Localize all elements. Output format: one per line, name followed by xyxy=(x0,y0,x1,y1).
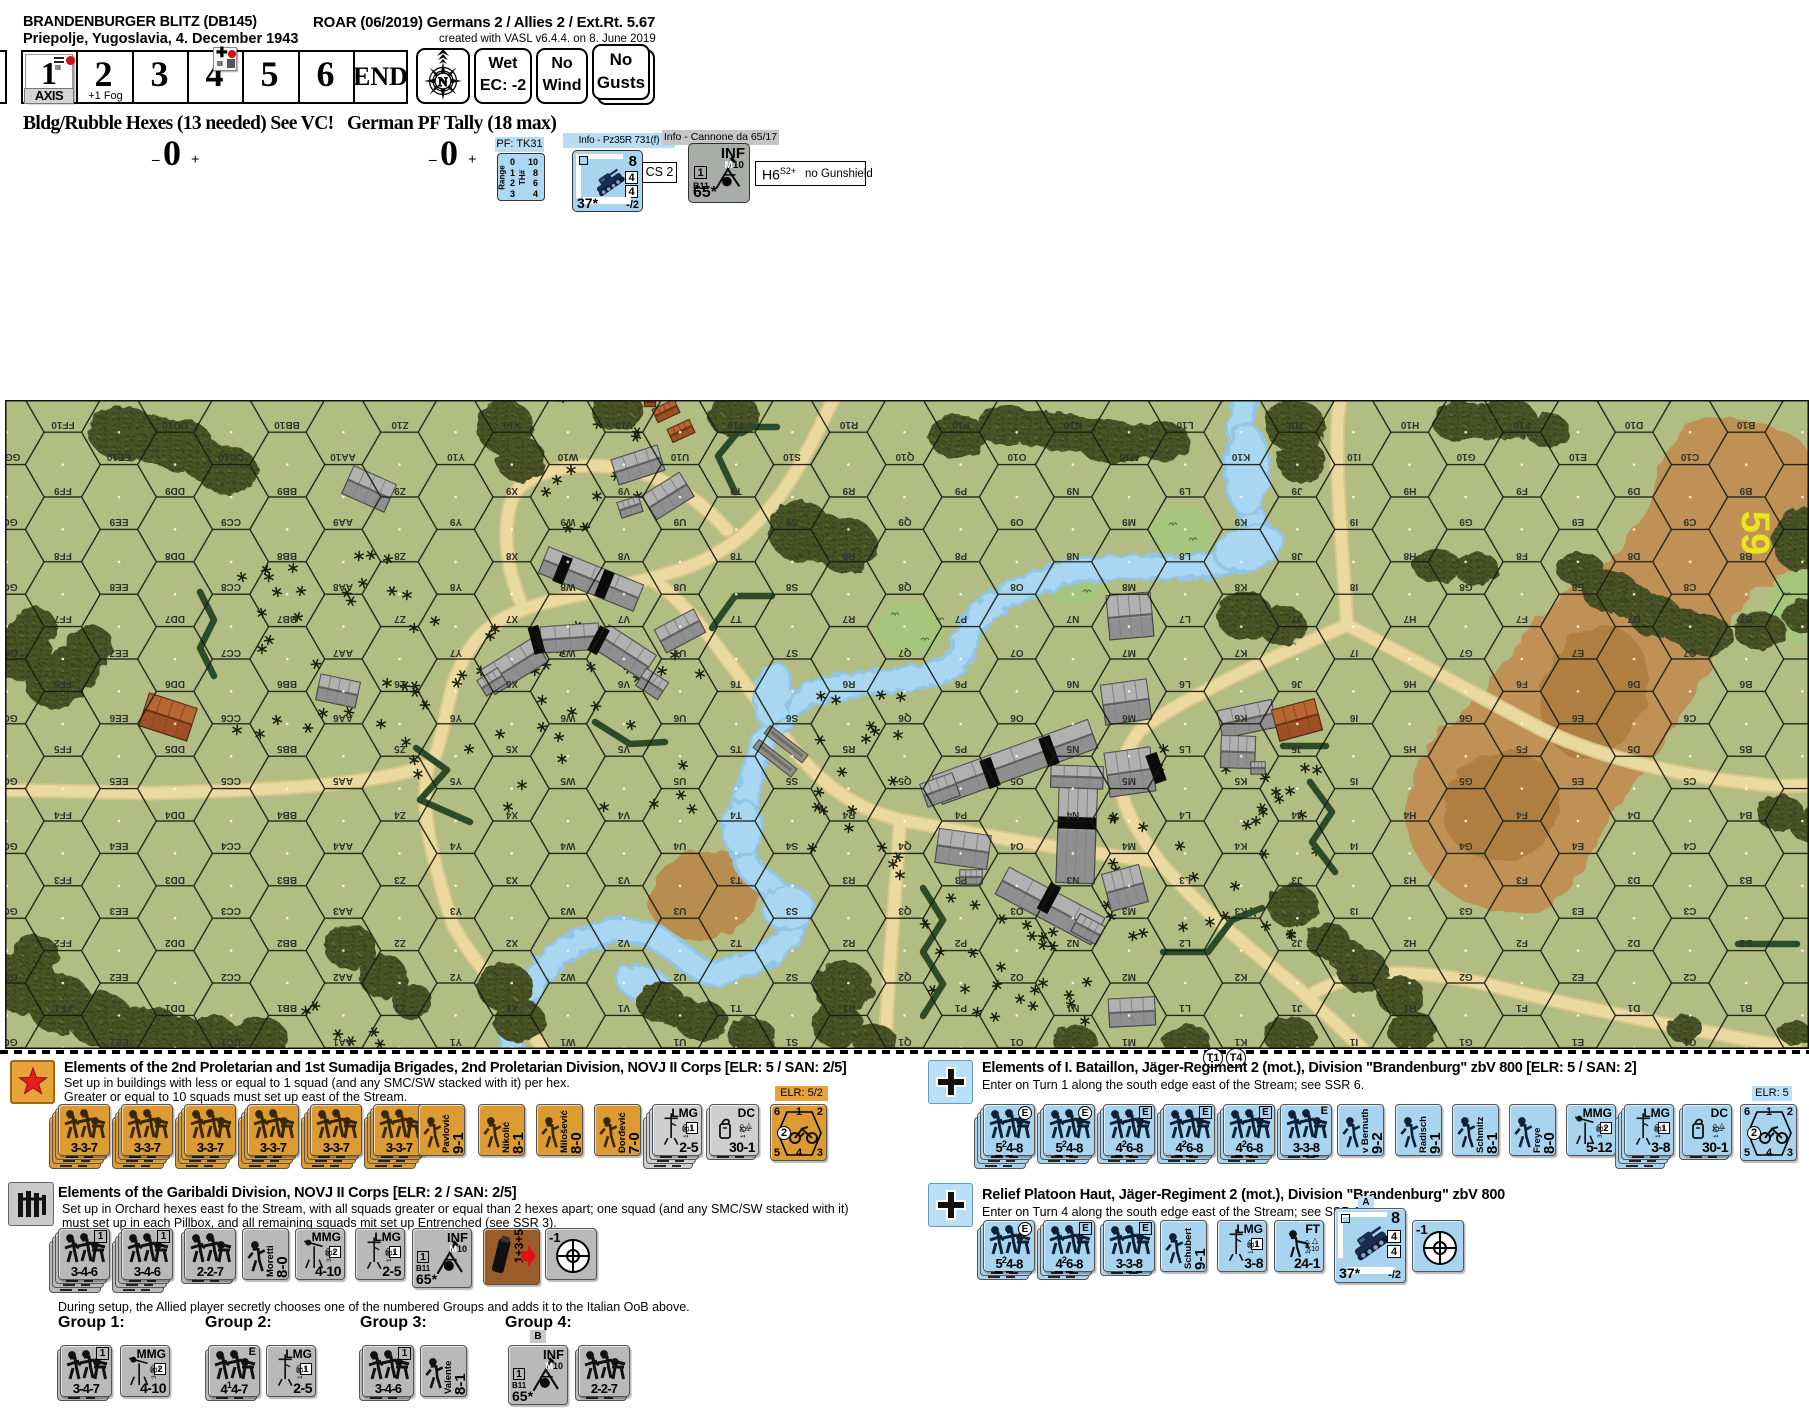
svg-text:59: 59 xyxy=(1733,511,1777,556)
svg-text:N: N xyxy=(438,74,448,89)
